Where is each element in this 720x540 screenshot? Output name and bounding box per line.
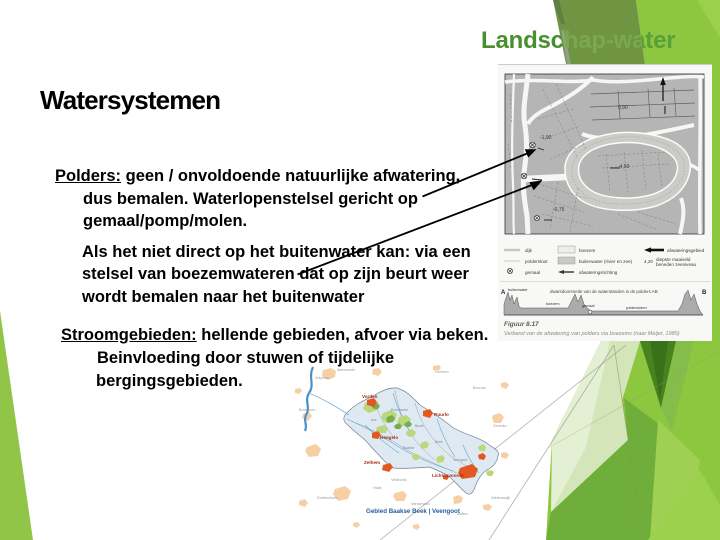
svg-text:Warnsveld: Warnsveld — [337, 368, 355, 372]
svg-text:Hengelo: Hengelo — [380, 435, 398, 440]
svg-text:Baakse: Baakse — [403, 446, 414, 450]
svg-text:Zelhem: Zelhem — [364, 460, 380, 465]
svg-text:Veldhoek: Veldhoek — [391, 478, 407, 482]
svg-text:Borculo: Borculo — [473, 386, 486, 390]
svg-text:Varsseveld: Varsseveld — [411, 502, 430, 506]
svg-text:Doetinchem: Doetinchem — [317, 496, 337, 500]
svg-text:Veengoot: Veengoot — [453, 458, 467, 462]
svg-text:Lochem: Lochem — [435, 370, 449, 374]
svg-text:bos: bos — [371, 418, 377, 422]
svg-text:Winterswijk: Winterswijk — [491, 496, 510, 500]
svg-text:Ruurlosche: Ruurlosche — [391, 408, 408, 412]
svg-text:Groenlo: Groenlo — [493, 424, 507, 428]
svg-text:Gebied Baakse Beek | Veengoot: Gebied Baakse Beek | Veengoot — [366, 508, 460, 515]
svg-text:Broek: Broek — [415, 424, 424, 428]
svg-text:Brummen: Brummen — [299, 408, 315, 412]
svg-text:Zutphen: Zutphen — [315, 376, 329, 380]
svg-text:Beek: Beek — [435, 440, 443, 444]
svg-text:Ruurlo: Ruurlo — [434, 412, 449, 417]
svg-text:Vorden: Vorden — [362, 394, 378, 399]
svg-text:Halle: Halle — [373, 486, 382, 490]
svg-text:Lichtenvoorde: Lichtenvoorde — [432, 473, 464, 478]
